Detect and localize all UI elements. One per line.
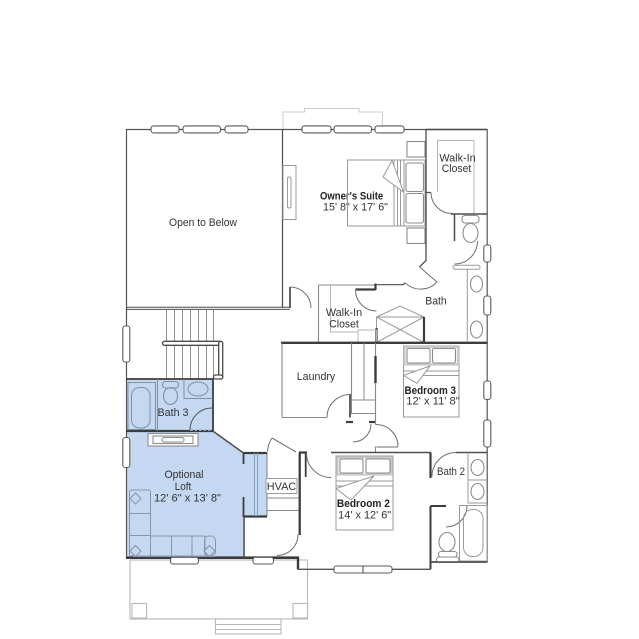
svg-text:12' x 11' 8": 12' x 11' 8" <box>406 395 460 407</box>
svg-text:Walk-In: Walk-In <box>326 307 362 319</box>
svg-text:12' 6" x 13' 8": 12' 6" x 13' 8" <box>154 493 221 505</box>
svg-text:14' x 12' 6": 14' x 12' 6" <box>338 510 391 522</box>
svg-text:Laundry: Laundry <box>297 371 336 383</box>
svg-text:Bath 2: Bath 2 <box>437 466 465 478</box>
svg-text:Owner's Suite: Owner's Suite <box>320 190 383 202</box>
svg-text:Loft: Loft <box>175 481 192 493</box>
svg-text:Optional: Optional <box>165 469 204 481</box>
svg-text:Closet: Closet <box>329 319 359 331</box>
svg-text:HVAC: HVAC <box>267 481 297 493</box>
svg-text:15' 8" x 17' 6": 15' 8" x 17' 6" <box>323 202 388 214</box>
svg-text:Bath 3: Bath 3 <box>158 407 189 419</box>
svg-text:Bath: Bath <box>425 296 447 308</box>
svg-text:Closet: Closet <box>442 163 472 175</box>
svg-text:Open to Below: Open to Below <box>169 217 237 229</box>
svg-text:Bedroom 2: Bedroom 2 <box>337 498 390 510</box>
